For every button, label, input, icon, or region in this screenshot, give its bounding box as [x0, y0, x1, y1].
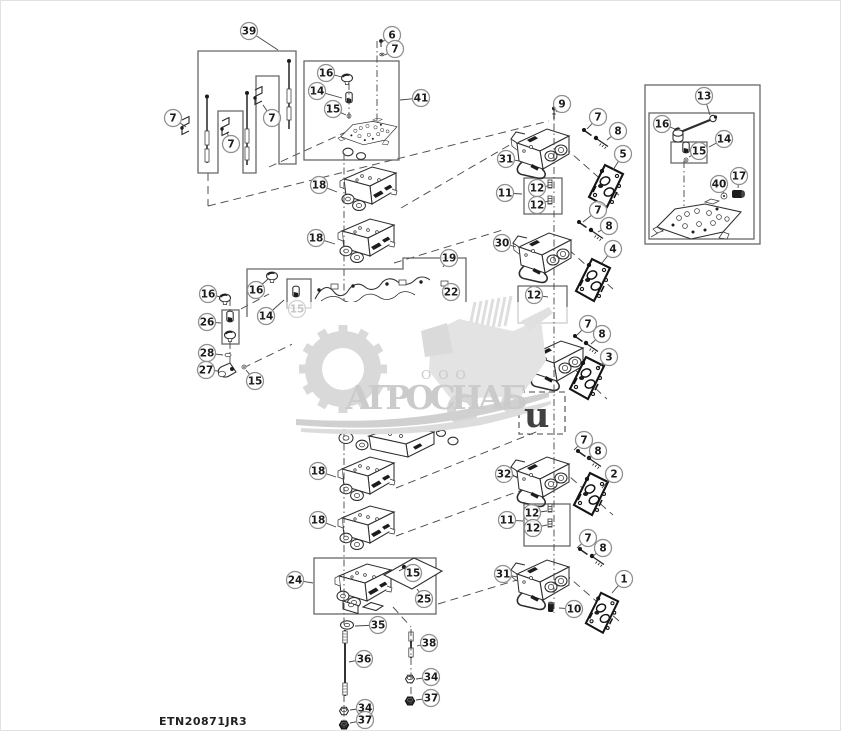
fitting-16-left — [220, 294, 231, 305]
valve-18-2 — [338, 219, 395, 263]
washer-35 — [341, 621, 354, 629]
callout-18: 18 — [308, 230, 336, 247]
callout-5: 5 — [613, 146, 632, 171]
svg-text:7: 7 — [584, 319, 591, 331]
svg-text:7: 7 — [594, 112, 601, 124]
plug-14-box19 — [293, 286, 299, 297]
valve-top-13 — [653, 199, 741, 239]
svg-text:4: 4 — [609, 244, 616, 256]
callout-31: 31 — [498, 151, 521, 168]
callout-40: 40 — [711, 176, 728, 194]
elbow-27 — [218, 363, 236, 377]
svg-text:7: 7 — [268, 113, 275, 125]
callout-15: 15 — [405, 565, 422, 582]
svg-text:7: 7 — [580, 435, 587, 447]
svg-text:25: 25 — [417, 594, 432, 606]
callout-34: 34 — [416, 669, 440, 686]
callout-11: 11 — [499, 512, 524, 529]
callout-35: 35 — [355, 617, 387, 634]
valve-41-port-b — [357, 153, 366, 160]
screw-8-3 — [584, 341, 598, 354]
callout-18: 18 — [311, 177, 338, 194]
nut-37-right — [405, 697, 414, 705]
disc-28 — [225, 353, 231, 357]
callout-28: 28 — [199, 345, 224, 362]
svg-text:15: 15 — [248, 376, 263, 388]
svg-text:8: 8 — [599, 543, 606, 555]
spring-12-4 — [548, 519, 552, 527]
svg-text:15: 15 — [290, 304, 305, 316]
watermark-name: АГРОСНАБ — [345, 378, 528, 417]
callout-37: 37 — [350, 712, 374, 729]
svg-text:27: 27 — [199, 365, 214, 377]
callout-38: 38 — [417, 635, 438, 652]
svg-text:3: 3 — [605, 352, 612, 364]
callout-11: 11 — [497, 185, 523, 202]
callout-15: 15 — [689, 143, 708, 160]
svg-text:2: 2 — [610, 469, 617, 481]
fitting-16-box41 — [342, 74, 353, 85]
watermark-stray-letter: u — [524, 395, 549, 436]
svg-text:8: 8 — [594, 446, 601, 458]
svg-text:16: 16 — [201, 289, 216, 301]
screw-8-1 — [594, 136, 608, 149]
callout-12: 12 — [529, 180, 549, 197]
svg-text:16: 16 — [655, 119, 670, 131]
screw-7-5 — [578, 547, 588, 555]
parts-diagram-page: ООО АГРОСНАБ u 3977767161415411818131614… — [0, 0, 841, 731]
callout-41: 41 — [400, 90, 430, 107]
svg-text:7: 7 — [584, 533, 591, 545]
plug-26-a — [227, 311, 233, 322]
svg-text:34: 34 — [424, 672, 439, 684]
callout-16: 16 — [248, 279, 269, 299]
callout-3: 3 — [598, 349, 618, 369]
svg-text:14: 14 — [717, 134, 732, 146]
callout-7: 7 — [577, 530, 597, 549]
exploded-parts-diagram: ООО АГРОСНАБ u 3977767161415411818131614… — [1, 1, 841, 731]
svg-text:11: 11 — [498, 188, 513, 200]
svg-text:37: 37 — [424, 693, 439, 705]
valve-31-top — [511, 129, 569, 178]
gasket-1 — [586, 593, 618, 633]
clip-7-c — [253, 86, 262, 105]
svg-text:36: 36 — [357, 654, 372, 666]
ball-15-left — [242, 365, 246, 369]
callout-7: 7 — [223, 132, 240, 153]
callout-25: 25 — [416, 589, 433, 608]
spring-12-1 — [548, 180, 552, 188]
fitting-26-b — [225, 331, 236, 342]
callout-12: 12 — [524, 505, 548, 522]
drawing-code: ETN20871JR3 — [159, 715, 247, 728]
callout-14: 14 — [309, 83, 343, 100]
svg-text:7: 7 — [169, 113, 176, 125]
callout-8: 8 — [607, 123, 627, 141]
screw-7-4 — [576, 449, 586, 457]
screw-6-7-top — [379, 39, 384, 56]
ball-15-box13 — [684, 158, 688, 162]
callout-12: 12 — [529, 197, 549, 214]
callout-36: 36 — [349, 651, 373, 668]
callout-16: 16 — [318, 65, 343, 82]
callout-4: 4 — [602, 241, 622, 264]
screw-7-1 — [582, 128, 592, 136]
svg-text:13: 13 — [697, 91, 712, 103]
gasket-5 — [589, 165, 623, 207]
valve-32 — [511, 457, 569, 506]
svg-text:15: 15 — [692, 146, 707, 158]
svg-text:12: 12 — [526, 523, 541, 535]
svg-text:17: 17 — [732, 171, 747, 183]
svg-text:15: 15 — [326, 104, 341, 116]
svg-text:7: 7 — [227, 139, 234, 151]
svg-text:11: 11 — [500, 515, 515, 527]
gasket-4 — [576, 259, 610, 301]
gasket-2 — [574, 473, 608, 515]
callout-37: 37 — [416, 690, 440, 707]
plug-14-box13 — [683, 142, 689, 153]
fitting-16-box19 — [267, 272, 278, 283]
valve-30 — [513, 233, 571, 282]
valve-18-1 — [340, 167, 397, 211]
svg-text:35: 35 — [371, 620, 386, 632]
callout-18: 18 — [310, 512, 337, 529]
svg-text:39: 39 — [242, 26, 257, 38]
svg-text:18: 18 — [312, 180, 327, 192]
plug-17 — [732, 190, 745, 198]
svg-text:15: 15 — [406, 568, 421, 580]
callout-24: 24 — [287, 572, 314, 589]
valve-31-bottom — [511, 560, 569, 609]
svg-text:9: 9 — [558, 99, 565, 111]
callout-17: 17 — [731, 168, 748, 189]
valve-18-4 — [338, 506, 395, 550]
svg-text:37: 37 — [358, 715, 373, 727]
callout-15: 15 — [289, 301, 306, 318]
svg-text:14: 14 — [310, 86, 325, 98]
callout-9: 9 — [554, 96, 571, 113]
nut-34-right — [406, 675, 415, 683]
callout-26: 26 — [199, 314, 222, 331]
callout-16: 16 — [654, 116, 676, 133]
svg-text:18: 18 — [311, 515, 326, 527]
callout-10: 10 — [559, 601, 583, 618]
svg-text:41: 41 — [414, 93, 429, 105]
screw-7-3 — [573, 334, 583, 342]
svg-text:31: 31 — [499, 154, 514, 166]
callout-18: 18 — [310, 463, 337, 480]
callout-7: 7 — [583, 202, 607, 223]
svg-text:1: 1 — [620, 574, 627, 586]
spring-12-3 — [548, 504, 552, 512]
svg-text:8: 8 — [614, 126, 621, 138]
callout-14: 14 — [709, 131, 733, 148]
callout-15: 15 — [246, 370, 264, 390]
plug-10 — [548, 602, 554, 612]
rod-36 — [343, 630, 347, 696]
svg-text:31: 31 — [496, 569, 511, 581]
callout-1: 1 — [612, 571, 633, 594]
svg-text:24: 24 — [288, 575, 303, 587]
spring-12-2 — [548, 196, 552, 204]
svg-text:16: 16 — [249, 285, 264, 297]
callout-16: 16 — [200, 286, 222, 303]
callout-12: 12 — [526, 287, 549, 304]
svg-text:7: 7 — [391, 44, 398, 56]
svg-text:16: 16 — [319, 68, 334, 80]
callout-7: 7 — [165, 110, 187, 128]
svg-text:18: 18 — [311, 466, 326, 478]
svg-text:22: 22 — [444, 287, 459, 299]
svg-text:12: 12 — [527, 290, 542, 302]
svg-text:14: 14 — [259, 311, 274, 323]
callout-27: 27 — [198, 362, 220, 379]
callout-13: 13 — [696, 88, 713, 116]
watermark: ООО АГРОСНАБ u — [287, 296, 553, 436]
valve-top-41 — [338, 118, 397, 145]
valve-18-3 — [338, 457, 395, 501]
valve-41-port-a — [343, 148, 353, 156]
callout-7: 7 — [263, 105, 281, 127]
svg-text:19: 19 — [442, 253, 457, 265]
svg-text:26: 26 — [200, 317, 215, 329]
callout-39: 39 — [241, 23, 279, 51]
wiring-harness-22 — [315, 277, 448, 302]
svg-text:12: 12 — [530, 183, 545, 195]
callout-15: 15 — [325, 101, 347, 118]
callout-2: 2 — [602, 466, 623, 489]
svg-text:12: 12 — [525, 508, 540, 520]
svg-text:18: 18 — [309, 233, 324, 245]
lever-13 — [673, 115, 717, 142]
callout-14: 14 — [258, 300, 285, 325]
screw-7-2 — [577, 220, 587, 228]
callout-7: 7 — [587, 109, 607, 130]
svg-text:10: 10 — [567, 604, 582, 616]
svg-text:8: 8 — [598, 329, 605, 341]
callout-22: 22 — [443, 284, 460, 301]
callout-8: 8 — [598, 218, 618, 235]
svg-text:32: 32 — [497, 469, 512, 481]
svg-text:8: 8 — [605, 221, 612, 233]
svg-text:40: 40 — [712, 179, 727, 191]
svg-text:12: 12 — [530, 200, 545, 212]
svg-text:7: 7 — [594, 205, 601, 217]
svg-text:38: 38 — [422, 638, 437, 650]
callout-12: 12 — [525, 520, 548, 537]
svg-text:28: 28 — [200, 348, 215, 360]
callout-19: 19 — [441, 250, 458, 268]
svg-text:5: 5 — [619, 149, 626, 161]
svg-text:6: 6 — [388, 30, 395, 42]
svg-text:30: 30 — [495, 238, 510, 250]
